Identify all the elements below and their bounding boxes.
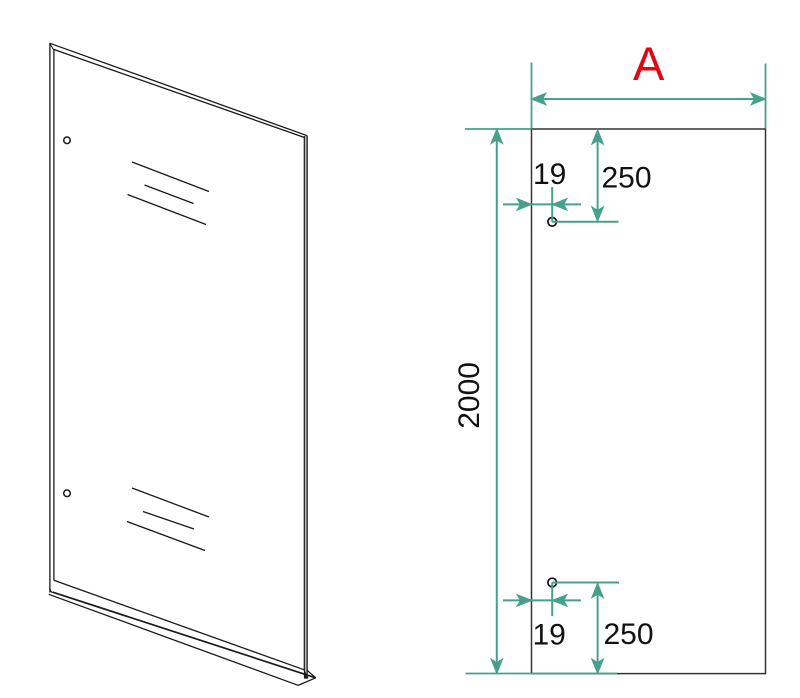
svg-text:2000: 2000 bbox=[453, 362, 486, 429]
svg-text:250: 250 bbox=[602, 162, 652, 195]
svg-text:250: 250 bbox=[604, 618, 654, 651]
svg-text:19: 19 bbox=[533, 158, 566, 191]
svg-text:A: A bbox=[633, 37, 665, 90]
svg-text:19: 19 bbox=[533, 619, 566, 652]
